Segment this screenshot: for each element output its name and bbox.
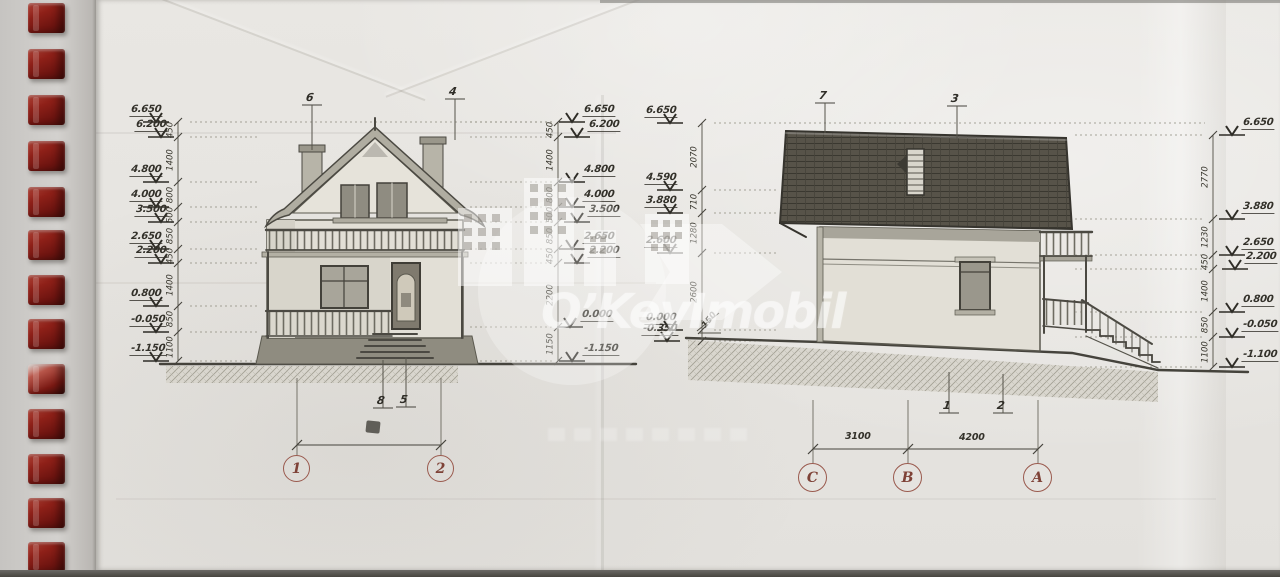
side-wall — [820, 227, 1040, 351]
tiled-roof — [780, 131, 1072, 229]
photographed-blueprint-page: 6.6506.2004.8004.0003.5002.6502.2000.800… — [0, 0, 1280, 577]
axis-dimension-smudge — [365, 420, 380, 433]
porch-railing — [268, 312, 390, 335]
side-elevation-house — [686, 131, 1248, 402]
side-window — [960, 262, 990, 310]
balcony-railing — [268, 231, 462, 250]
balcony-railing — [1043, 233, 1090, 255]
elevation-drawings — [0, 0, 1280, 577]
ground-hatch — [688, 340, 1158, 402]
corner-post — [817, 227, 823, 342]
roof-ladder-window — [907, 149, 924, 195]
front-elevation-house — [160, 118, 636, 383]
porch-railing — [1045, 300, 1085, 325]
ground-hatch — [166, 366, 458, 383]
foundation — [256, 336, 478, 364]
